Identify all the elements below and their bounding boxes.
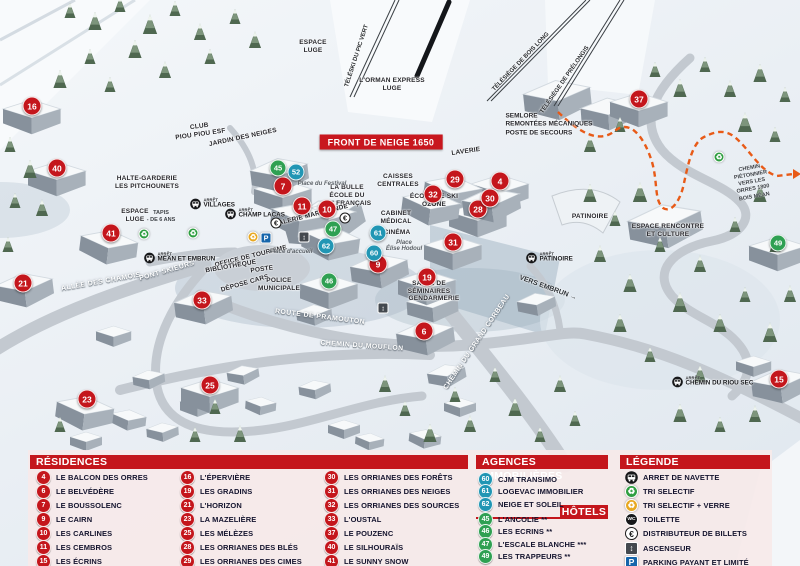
item-label: LE CAIRN: [56, 515, 92, 524]
item-label: CJM TRANSIMO: [498, 475, 557, 484]
info-panel: RÉSIDENCES AGENCES IMMOBILIÈRES LÉGENDE …: [28, 450, 772, 566]
list-item-le-silhoura-s: 40LE SILHOURAÏS: [324, 540, 459, 554]
map-marker-46[interactable]: 46: [321, 273, 338, 290]
item-label: LES CARLINES: [56, 529, 112, 538]
list-item-les-orrianes-des-bl-s: 28LES ORRIANES DES BLÉS: [180, 540, 302, 554]
item-label: LES ORRIANES DES CIMES: [200, 557, 302, 566]
list-item-neige-et-soleil: 62NEIGE ET SOLEIL: [478, 498, 583, 511]
item-number-badge: 11: [36, 540, 51, 555]
map-marker-15[interactable]: 15: [770, 370, 789, 389]
map-marker-6[interactable]: 6: [415, 322, 434, 341]
list-item-le-cairn: 9LE CAIRN: [36, 512, 148, 526]
resort-map: FRONT DE NEIGE 1650LAVERIECAISSES CENTRA…: [0, 0, 800, 566]
legende-list: ARRET DE NAVETTE♻TRI SELECTIF♻TRI SELECT…: [625, 470, 749, 566]
item-number-badge: 15: [36, 554, 51, 566]
item-label: L'ÉPERVIÈRE: [200, 473, 250, 482]
map-marker-19[interactable]: 19: [418, 268, 437, 287]
map-marker-62[interactable]: 62: [318, 238, 335, 255]
map-marker-16[interactable]: 16: [23, 97, 42, 116]
item-number-badge: 25: [180, 526, 195, 541]
item-label: LA MAZELIÈRE: [200, 515, 256, 524]
list-item-l-escale-blanche: 47L'ESCALE BLANCHE ***: [478, 538, 586, 551]
item-label: ARRET DE NAVETTE: [643, 473, 719, 482]
map-marker-52[interactable]: 52: [288, 164, 305, 181]
list-item-le-sunny-snow: 41LE SUNNY SNOW: [324, 554, 459, 566]
legend-item-arret-de-navette: ARRET DE NAVETTE: [625, 470, 749, 484]
map-marker-30[interactable]: 30: [481, 189, 500, 208]
map-marker-61[interactable]: 61: [370, 225, 387, 242]
list-item-les-carlines: 10LES CARLINES: [36, 526, 148, 540]
item-label: LE POUZENC: [344, 529, 393, 538]
item-number-badge: 32: [324, 498, 339, 513]
map-marker-49[interactable]: 49: [770, 235, 787, 252]
item-label: LE BALCON DES ORRES: [56, 473, 148, 482]
item-number-badge: 37: [324, 526, 339, 541]
item-number-badge: 16: [180, 470, 195, 485]
item-number-badge: 4: [36, 470, 51, 485]
list-item-les-m-l-zes: 25LES MÉLÈZES: [180, 526, 302, 540]
agences-list: 60CJM TRANSIMO61LOGEVAC IMMOBILIER62NEIG…: [478, 473, 583, 511]
map-marker-4[interactable]: 4: [491, 172, 510, 191]
map-marker-37[interactable]: 37: [630, 90, 649, 109]
item-label: PARKING PAYANT ET LIMITÉ: [643, 558, 749, 566]
item-label: LES ORRIANES DES SOURCES: [344, 501, 459, 510]
item-label: LES CEMBROS: [56, 543, 112, 552]
bus-icon: [625, 471, 638, 484]
item-label: L'ANCOLIE **: [498, 515, 547, 524]
item-number-badge: 31: [324, 484, 339, 499]
wc-icon: WC: [625, 513, 638, 526]
item-label: TRI SELECTIF + VERRE: [643, 501, 730, 510]
item-number-badge: 7: [36, 498, 51, 513]
map-marker-10[interactable]: 10: [318, 200, 337, 219]
item-label: LES ORRIANES DES NEIGES: [344, 487, 451, 496]
map-marker-21[interactable]: 21: [14, 274, 33, 293]
item-label: LES GRADINS: [200, 487, 252, 496]
map-marker-33[interactable]: 33: [193, 291, 212, 310]
list-item-les-orrianes-des-sources: 32LES ORRIANES DES SOURCES: [324, 498, 459, 512]
residences-column-2: 16L'ÉPERVIÈRE19LES GRADINS21L'HORIZON23L…: [180, 470, 302, 566]
euro-icon: €: [625, 527, 638, 540]
list-item-les-orrianes-des-for-ts: 30LES ORRIANES DES FORÊTS: [324, 470, 459, 484]
map-marker-40[interactable]: 40: [48, 159, 67, 178]
item-label: LES ECRINS **: [498, 527, 552, 536]
legend-item-tri-selectif-verre: ♻TRI SELECTIF + VERRE: [625, 498, 749, 512]
item-number-badge: 9: [36, 512, 51, 527]
legende-header: LÉGENDE: [620, 455, 770, 469]
list-item-la-mazeli-re: 23LA MAZELIÈRE: [180, 512, 302, 526]
list-item-le-boussolenc: 7LE BOUSSOLENC: [36, 498, 148, 512]
item-label: DISTRIBUTEUR DE BILLETS: [643, 529, 747, 538]
item-label: LES TRAPPEURS **: [498, 552, 570, 561]
list-item-l-oustal: 33L'OUSTAL: [324, 512, 459, 526]
list-item-les-gradins: 19LES GRADINS: [180, 484, 302, 498]
item-label: TRI SELECTIF: [643, 487, 695, 496]
item-label: TOILETTE: [643, 515, 680, 524]
item-number-badge: 33: [324, 512, 339, 527]
map-marker-41[interactable]: 41: [102, 224, 121, 243]
legend-item-ascenseur: ↕ASCENSEUR: [625, 541, 749, 555]
item-number-badge: 21: [180, 498, 195, 513]
item-label: L'ESCALE BLANCHE ***: [498, 540, 586, 549]
legend-item-parking-payant-et-limit: PPARKING PAYANT ET LIMITÉ: [625, 555, 749, 566]
residences-column-3: 30LES ORRIANES DES FORÊTS31LES ORRIANES …: [324, 470, 459, 566]
map-marker-31[interactable]: 31: [444, 233, 463, 252]
item-number-badge: 6: [36, 484, 51, 499]
parking-icon: P: [625, 556, 638, 566]
list-item-le-balcon-des-orres: 4LE BALCON DES ORRES: [36, 470, 148, 484]
item-number-badge: 28: [180, 540, 195, 555]
map-marker-11[interactable]: 11: [293, 197, 312, 216]
residences-column-1: 4LE BALCON DES ORRES6LE BELVÉDÈRE7LE BOU…: [36, 470, 148, 566]
item-label: LES MÉLÈZES: [200, 529, 253, 538]
item-number-badge: 41: [324, 554, 339, 566]
list-item-l-horizon: 21L'HORIZON: [180, 498, 302, 512]
list-item-le-pouzenc: 37LE POUZENC: [324, 526, 459, 540]
map-marker-60[interactable]: 60: [366, 245, 383, 262]
hotels-list: 45L'ANCOLIE **46LES ECRINS **47L'ESCALE …: [478, 513, 586, 563]
item-label: ASCENSEUR: [643, 544, 691, 553]
legend-item-tri-selectif: ♻TRI SELECTIF: [625, 484, 749, 498]
item-label: LOGEVAC IMMOBILIER: [498, 487, 583, 496]
item-label: LE BOUSSOLENC: [56, 501, 122, 510]
item-number-badge: 10: [36, 526, 51, 541]
list-item-logevac-immobilier: 61LOGEVAC IMMOBILIER: [478, 486, 583, 499]
legend-item-toilette: WCTOILETTE: [625, 513, 749, 527]
item-label: NEIGE ET SOLEIL: [498, 500, 564, 509]
item-number-badge: 29: [180, 554, 195, 566]
elevator-icon: ↕: [625, 542, 638, 555]
map-marker-47[interactable]: 47: [325, 221, 342, 238]
list-item-les-orrianes-des-neiges: 31LES ORRIANES DES NEIGES: [324, 484, 459, 498]
item-label: L'HORIZON: [200, 501, 242, 510]
list-item-les-orrianes-des-cimes: 29LES ORRIANES DES CIMES: [180, 554, 302, 566]
item-number-badge: 30: [324, 470, 339, 485]
residences-header: RÉSIDENCES: [30, 455, 468, 469]
recycle-green-icon: ♻: [625, 485, 638, 498]
item-label: LES ORRIANES DES BLÉS: [200, 543, 298, 552]
item-number-badge: 40: [324, 540, 339, 555]
list-item-les-ecrins: 46LES ECRINS **: [478, 526, 586, 539]
item-number-badge: 23: [180, 512, 195, 527]
item-label: LES ÉCRINS: [56, 557, 102, 566]
list-item-le-belv-d-re: 6LE BELVÉDÈRE: [36, 484, 148, 498]
list-item-l-ancolie: 45L'ANCOLIE **: [478, 513, 586, 526]
map-marker-45[interactable]: 45: [270, 160, 287, 177]
item-number-badge: 62: [478, 497, 493, 512]
list-item-les-trappeurs: 49LES TRAPPEURS **: [478, 551, 586, 564]
item-label: LES ORRIANES DES FORÊTS: [344, 473, 453, 482]
legend-item-distributeur-de-billets: €DISTRIBUTEUR DE BILLETS: [625, 527, 749, 541]
map-marker-25[interactable]: 25: [201, 376, 220, 395]
item-number-badge: 19: [180, 484, 195, 499]
map-marker-29[interactable]: 29: [446, 170, 465, 189]
list-item-les-cembros: 11LES CEMBROS: [36, 540, 148, 554]
list-item-l-pervi-re: 16L'ÉPERVIÈRE: [180, 470, 302, 484]
recycle-yellow-icon: ♻: [625, 499, 638, 512]
item-label: LE SUNNY SNOW: [344, 557, 409, 566]
agences-header: AGENCES IMMOBILIÈRES: [476, 455, 608, 469]
list-item-cjm-transimo: 60CJM TRANSIMO: [478, 473, 583, 486]
item-number-badge: 49: [478, 549, 493, 564]
map-marker-23[interactable]: 23: [78, 390, 97, 409]
list-item-les-crins: 15LES ÉCRINS: [36, 554, 148, 566]
map-marker-7[interactable]: 7: [274, 177, 293, 196]
map-marker-32[interactable]: 32: [424, 185, 443, 204]
item-label: L'OUSTAL: [344, 515, 381, 524]
item-label: LE BELVÉDÈRE: [56, 487, 114, 496]
item-label: LE SILHOURAÏS: [344, 543, 403, 552]
